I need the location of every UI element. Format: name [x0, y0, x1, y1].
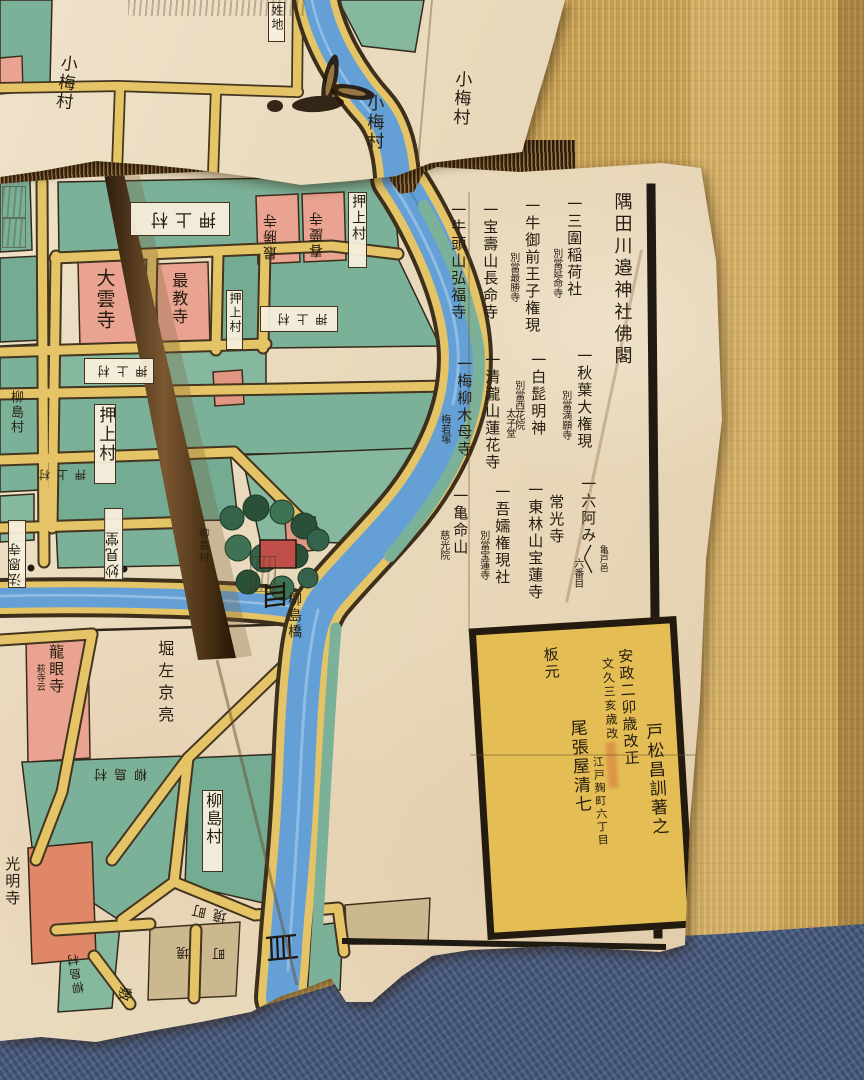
top-edge-cut-text	[128, 0, 308, 16]
top-strip-artwork	[0, 0, 864, 1080]
photo-of-edo-map: { "colors": { "paper": "#e9dabd", "block…	[0, 0, 864, 1080]
top-strip-shadow: 小梅村 小梅村 小梅村 姓地	[0, 0, 864, 1080]
label-komume-center: 小梅村	[364, 94, 382, 178]
top-map-strip: 小梅村 小梅村 小梅村 姓地	[0, 0, 864, 1080]
